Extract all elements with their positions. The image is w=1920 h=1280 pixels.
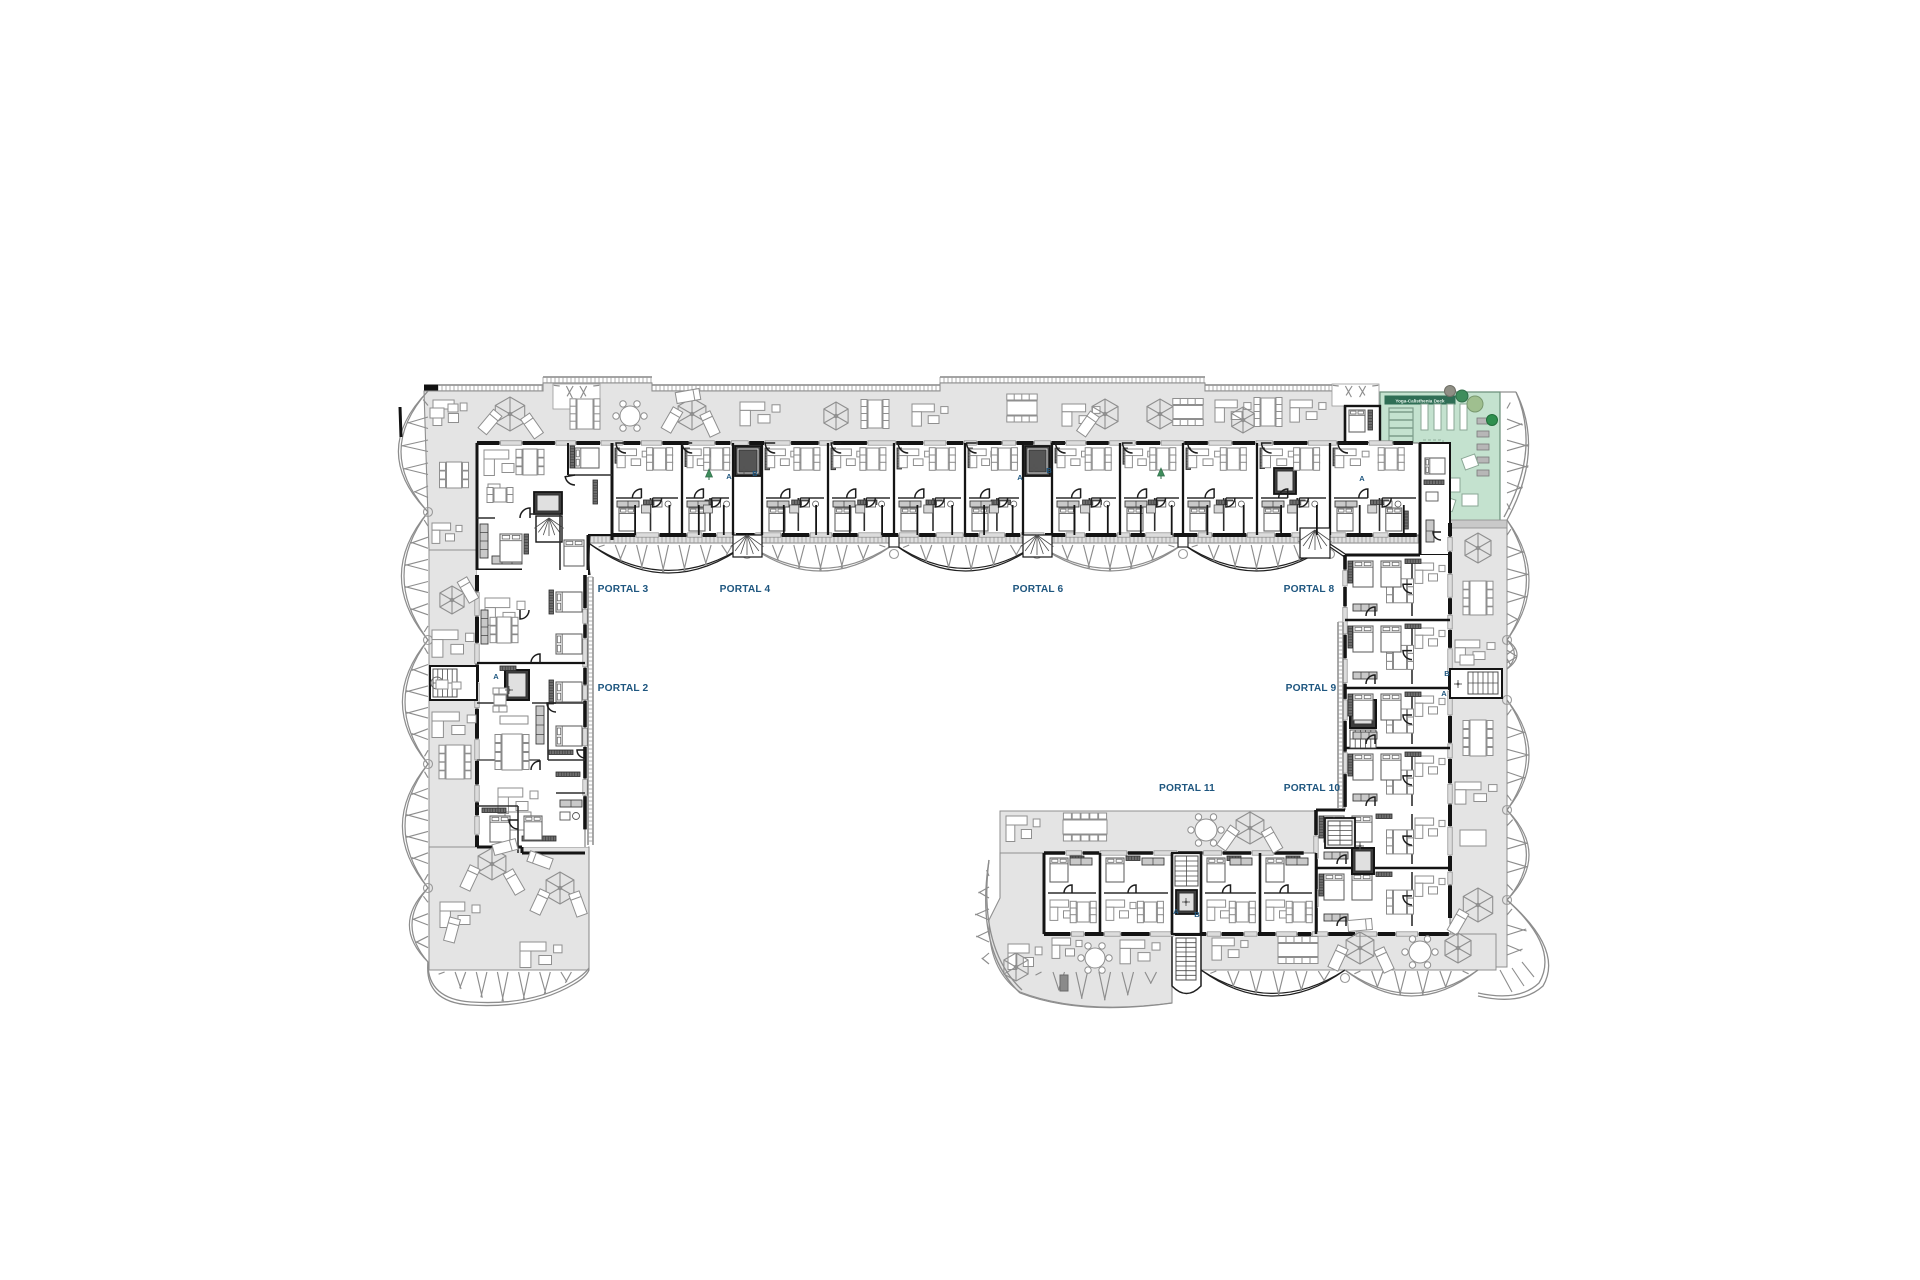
svg-text:B: B [752,469,758,478]
svg-text:A: A [726,472,732,481]
svg-text:PORTAL 3: PORTAL 3 [598,584,649,595]
svg-text:PORTAL 2: PORTAL 2 [598,683,649,694]
svg-text:PORTAL 11: PORTAL 11 [1159,783,1215,794]
svg-text:B: B [1046,466,1052,475]
svg-text:A: A [1173,907,1179,916]
svg-text:B: B [1194,910,1200,919]
svg-text:A: A [1359,474,1365,483]
svg-text:A: A [1017,473,1023,482]
svg-text:Yoga-Calisthenia Deck: Yoga-Calisthenia Deck [1395,399,1445,404]
svg-text:PORTAL 4: PORTAL 4 [720,584,771,595]
svg-text:B: B [1444,669,1450,678]
svg-text:A: A [1441,689,1447,698]
svg-text:PORTAL 8: PORTAL 8 [1284,584,1335,595]
svg-text:PORTAL 10: PORTAL 10 [1284,783,1341,794]
svg-text:PORTAL 9: PORTAL 9 [1286,683,1337,694]
svg-text:PORTAL 6: PORTAL 6 [1013,584,1064,595]
svg-text:A: A [493,672,499,681]
